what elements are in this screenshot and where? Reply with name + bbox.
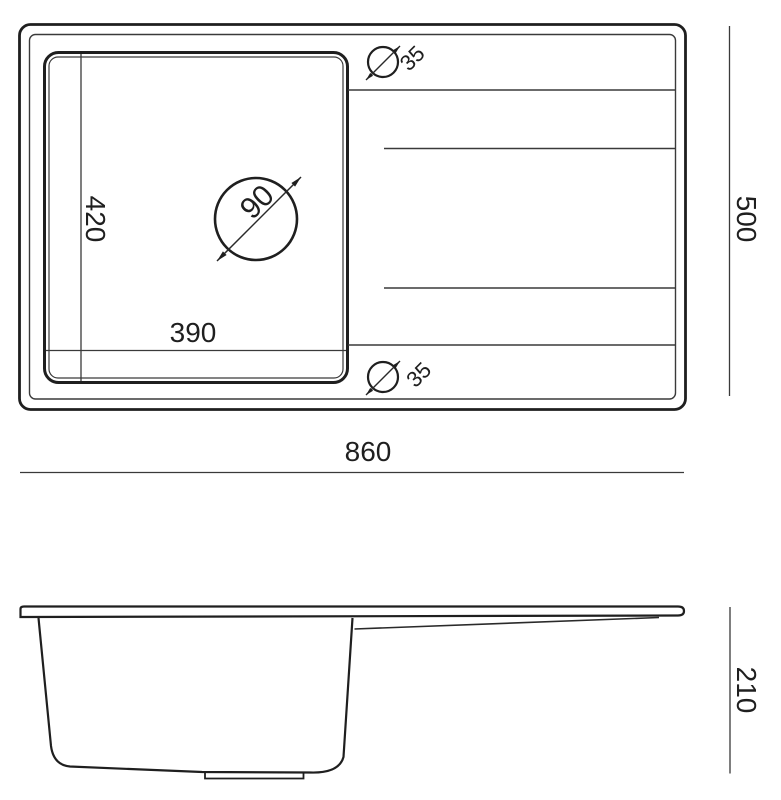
- sink-technical-drawing: 420 390 90 35 35 500: [0, 0, 781, 800]
- bowl-depth-label: 420: [80, 196, 111, 243]
- tap-hole-top-label: 35: [395, 41, 430, 76]
- drainboard-slope-line: [355, 618, 660, 630]
- overall-height-label: 210: [731, 667, 762, 714]
- top-view: 420 390 90 35 35 500: [20, 25, 763, 473]
- tap-hole-bottom-label: 35: [401, 357, 436, 392]
- side-view: 210: [21, 607, 763, 779]
- bowl-profile: [39, 618, 353, 773]
- overall-width-label: 860: [345, 436, 392, 467]
- tap-hole-bottom: [368, 362, 398, 392]
- technical-drawing-page: 420 390 90 35 35 500: [0, 0, 781, 800]
- sink-outer-edge: [20, 25, 686, 410]
- drain-diameter-label: 90: [234, 179, 281, 226]
- tap-hole-top: [368, 47, 398, 77]
- rim-profile: [21, 607, 685, 618]
- bowl-width-label: 390: [170, 317, 217, 348]
- overall-depth-label: 500: [731, 196, 762, 243]
